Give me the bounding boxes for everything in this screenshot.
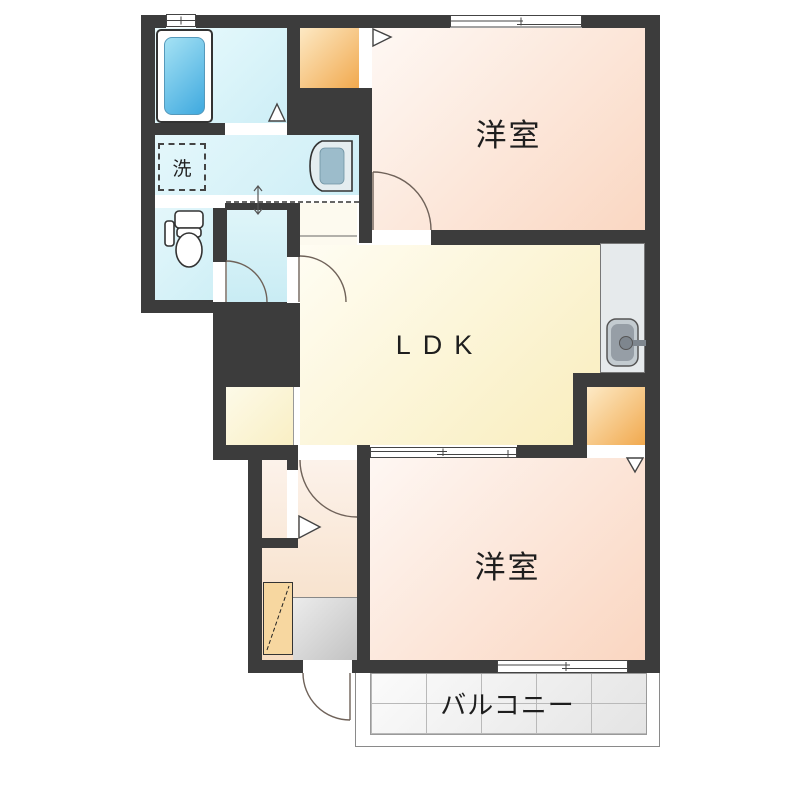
wall-nook-left	[287, 203, 300, 257]
laundry-label: 洗	[172, 154, 191, 181]
wall-entrance-bottom	[248, 660, 303, 673]
wall-closet2-top	[573, 373, 645, 387]
wall-closet2-left	[573, 387, 587, 445]
washing-machine-space: 洗	[158, 143, 206, 191]
bathroom-door-gap	[225, 123, 287, 135]
closet2-door-gap	[587, 445, 645, 458]
hallcloset-door-gap	[287, 470, 298, 538]
bedroom-top-window-gap	[450, 15, 582, 28]
corridor-ldk-door-gap	[287, 257, 300, 303]
bedroom-bottom-closet	[587, 387, 645, 445]
wall-hallcloset-stub	[262, 538, 298, 548]
bathtub-water	[164, 37, 205, 115]
ldk-nook-floor	[300, 203, 357, 245]
bedroom-top-floor	[372, 28, 645, 230]
wall-ldk-closet-left	[213, 387, 226, 445]
door-arc-entrance	[303, 673, 350, 720]
top-closet-door-gap	[359, 28, 372, 88]
floor-plan: 洗	[0, 0, 800, 800]
toilet-floor	[155, 208, 213, 302]
sliding-partition-ldk-bedroom-icon	[371, 448, 517, 458]
bedroom-top-closet	[298, 28, 359, 88]
ldk-closet-floor	[226, 387, 294, 445]
toilet-door-gap	[213, 262, 227, 302]
wall-center-chunk	[213, 302, 300, 387]
wall-bedroom-bottom-left	[357, 445, 370, 673]
bathroom-window-gap	[166, 14, 196, 28]
entrance-floor	[293, 597, 357, 661]
bedroom-top-door-gap	[372, 230, 431, 245]
bedroom-bottom-floor	[370, 458, 645, 660]
wall-bedroom-bottom-edge-right	[628, 660, 660, 673]
wall-top	[141, 15, 660, 28]
balcony-window-gap	[497, 660, 628, 673]
wall-hallcloset-top	[287, 458, 298, 470]
ldk-hall-door-gap	[298, 447, 357, 460]
wall-right	[645, 15, 660, 673]
wall-block-bottom	[141, 300, 213, 313]
kitchen-counter	[600, 243, 645, 373]
balcony-tiles	[370, 673, 647, 735]
wall-left-upper	[141, 15, 155, 313]
wall-hall-left	[248, 458, 262, 673]
wall-bath-bottom-left	[141, 123, 225, 135]
entrance-door-gap	[303, 660, 352, 673]
wall-bedroom-bottom-edge-left	[352, 660, 497, 673]
wall-washroom-stub	[225, 203, 292, 210]
wall-ldk-bottom-mid	[517, 445, 587, 458]
shoe-cabinet	[263, 582, 293, 655]
corridor-floor	[227, 208, 287, 303]
